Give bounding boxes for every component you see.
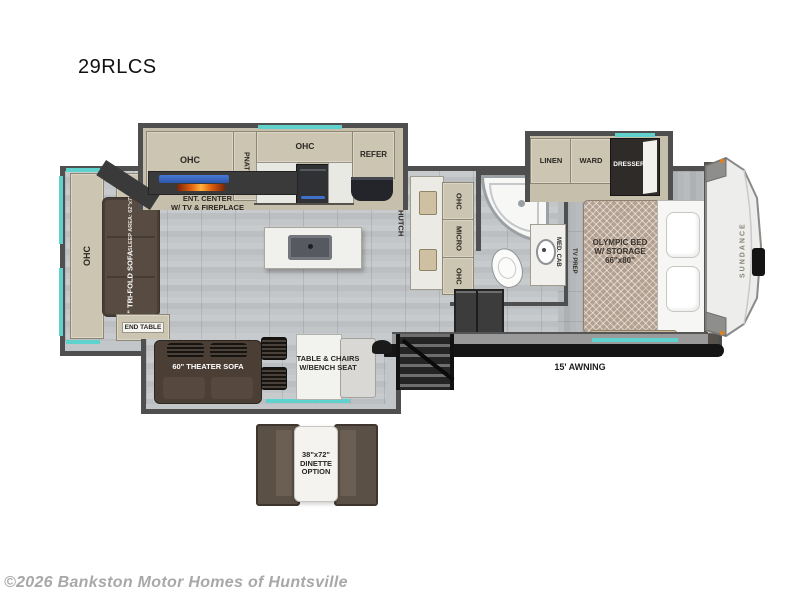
- island-faucet-icon: [308, 244, 313, 249]
- door-side-window-accent: [592, 338, 678, 342]
- dinette-bench-cushion: [276, 430, 292, 496]
- ent-center-label: ENT. CENTER W/ TV & FIREPLACE: [150, 195, 265, 212]
- theater-headrest: [167, 343, 204, 358]
- bed-label: OLYMPIC BED W/ STORAGE 66"x80": [580, 238, 660, 266]
- model-title: 29RLCS: [78, 56, 157, 79]
- entry-steps-rail: [402, 339, 455, 382]
- theater-sofa: 60" THEATER SOFA: [154, 340, 262, 404]
- rear-ohc-label: OHC: [82, 246, 92, 266]
- bath-wall-left: [476, 171, 481, 251]
- ent-center-label-line2: W/ TV & FIREPLACE: [150, 204, 265, 213]
- brand-label: SUNDANCE: [736, 198, 750, 302]
- bed-label-line3: 66"x80": [580, 256, 660, 265]
- bed-mattress: [583, 200, 659, 334]
- rear-window-accent: [59, 176, 63, 244]
- dinette-bench-right: [334, 424, 378, 506]
- kitchen-island: [264, 227, 362, 269]
- theater-headrest: [210, 343, 247, 358]
- rear-ohc-cabinet: OHC: [70, 173, 104, 339]
- dresser: DRESSER: [610, 138, 660, 196]
- bedroom-steps-divider: [476, 291, 478, 335]
- shower-drain-icon: [518, 200, 525, 207]
- microwave-label: MICRO: [454, 226, 463, 251]
- wardrobe-label: WARD: [580, 157, 603, 166]
- kitchen-ohc-left-label: OHC: [180, 155, 200, 165]
- rear-window-accent: [59, 268, 63, 336]
- dining-label-line2: W/BENCH SEAT: [282, 364, 374, 373]
- sofa-label: 75" TRI-FOLD SOFA: [127, 251, 136, 322]
- hitch-pin: [752, 248, 765, 276]
- stove-handle: [301, 196, 325, 199]
- med-cab-label: MED. CAB: [554, 237, 561, 267]
- refer-label: REFER: [360, 150, 387, 159]
- theater-sofa-label: 60" THEATER SOFA: [155, 363, 261, 372]
- copyright-watermark: ©2026 Bankston Motor Homes of Huntsville: [4, 574, 348, 592]
- pillow: [666, 212, 700, 258]
- marker-light-icon: [720, 331, 724, 335]
- end-table-bottom-label: END TABLE: [122, 322, 165, 333]
- dining-label: TABLE & CHAIRS W/BENCH SEAT: [282, 355, 374, 372]
- dinette-bench-cushion: [340, 430, 356, 496]
- hutch-item: [419, 191, 437, 215]
- pillow: [666, 266, 700, 312]
- marker-light-icon: [720, 159, 724, 163]
- linen-cabinet: LINEN: [530, 138, 572, 184]
- rear-window-accent: [66, 340, 100, 344]
- hutch-counter: [410, 176, 444, 290]
- fireplace-icon: [177, 184, 225, 191]
- end-table-bottom: END TABLE: [116, 314, 170, 341]
- bed-label-line2: W/ STORAGE: [580, 247, 660, 256]
- awning-label: 15' AWNING: [540, 362, 620, 372]
- refer-cabinet: REFER: [352, 131, 395, 179]
- linen-label: LINEN: [540, 157, 563, 166]
- hutch-item: [419, 249, 437, 271]
- wardrobe-cabinet: WARD: [570, 138, 612, 184]
- galley-ohc-top-label: OHC: [454, 193, 463, 210]
- tv-icon: [159, 175, 229, 183]
- counter-front-edge: [254, 203, 354, 205]
- bath-faucet-icon: [542, 248, 546, 252]
- galley-ohc-top: OHC: [442, 182, 474, 220]
- galley-ohc-bottom-label: OHC: [454, 268, 463, 285]
- stove-top-line: [300, 169, 326, 171]
- microwave-cabinet: MICRO: [442, 219, 474, 258]
- floorplan-page: 29RLCS OHC END TABLE 75" TRI-FOLD SOFA S…: [0, 0, 800, 600]
- entry-grab-handle: [372, 340, 392, 354]
- tv-prep-label: TV PREP: [570, 248, 577, 274]
- dinette-table: 38"x72" DINETTE OPTION: [294, 426, 338, 502]
- rear-window-accent: [66, 168, 100, 172]
- kitchen-ohc-center-label: OHC: [296, 142, 315, 152]
- hutch-label: HUTCH: [396, 210, 405, 236]
- theater-seat: [211, 377, 253, 399]
- theater-seat: [163, 377, 205, 399]
- bed-label-line1: OLYMPIC BED: [580, 238, 660, 247]
- kitchen-slide-accent: [258, 125, 342, 129]
- sofa-label-block: 75" TRI-FOLD SOFA SLEEP AREA: 62"x73": [109, 202, 153, 312]
- bath-vanity: MED. CAB: [530, 224, 566, 286]
- sofa-sleep-label: SLEEP AREA: 62"x73": [128, 192, 134, 251]
- tri-fold-sofa: 75" TRI-FOLD SOFA SLEEP AREA: 62"x73": [102, 197, 160, 317]
- entry-steps: [396, 334, 454, 390]
- dresser-label: DRESSER: [611, 161, 647, 168]
- dinette-label-line3: OPTION: [302, 468, 331, 477]
- bath-sink: [536, 239, 556, 265]
- kitchen-ohc-center: OHC: [256, 131, 354, 163]
- bedroom-slide-accent: [615, 133, 655, 137]
- ent-center-unit: [148, 171, 298, 195]
- toilet-seat-line: [495, 255, 519, 281]
- stove: [296, 164, 330, 205]
- front-cap-body: [706, 158, 761, 336]
- refrigerator-front: [351, 177, 393, 201]
